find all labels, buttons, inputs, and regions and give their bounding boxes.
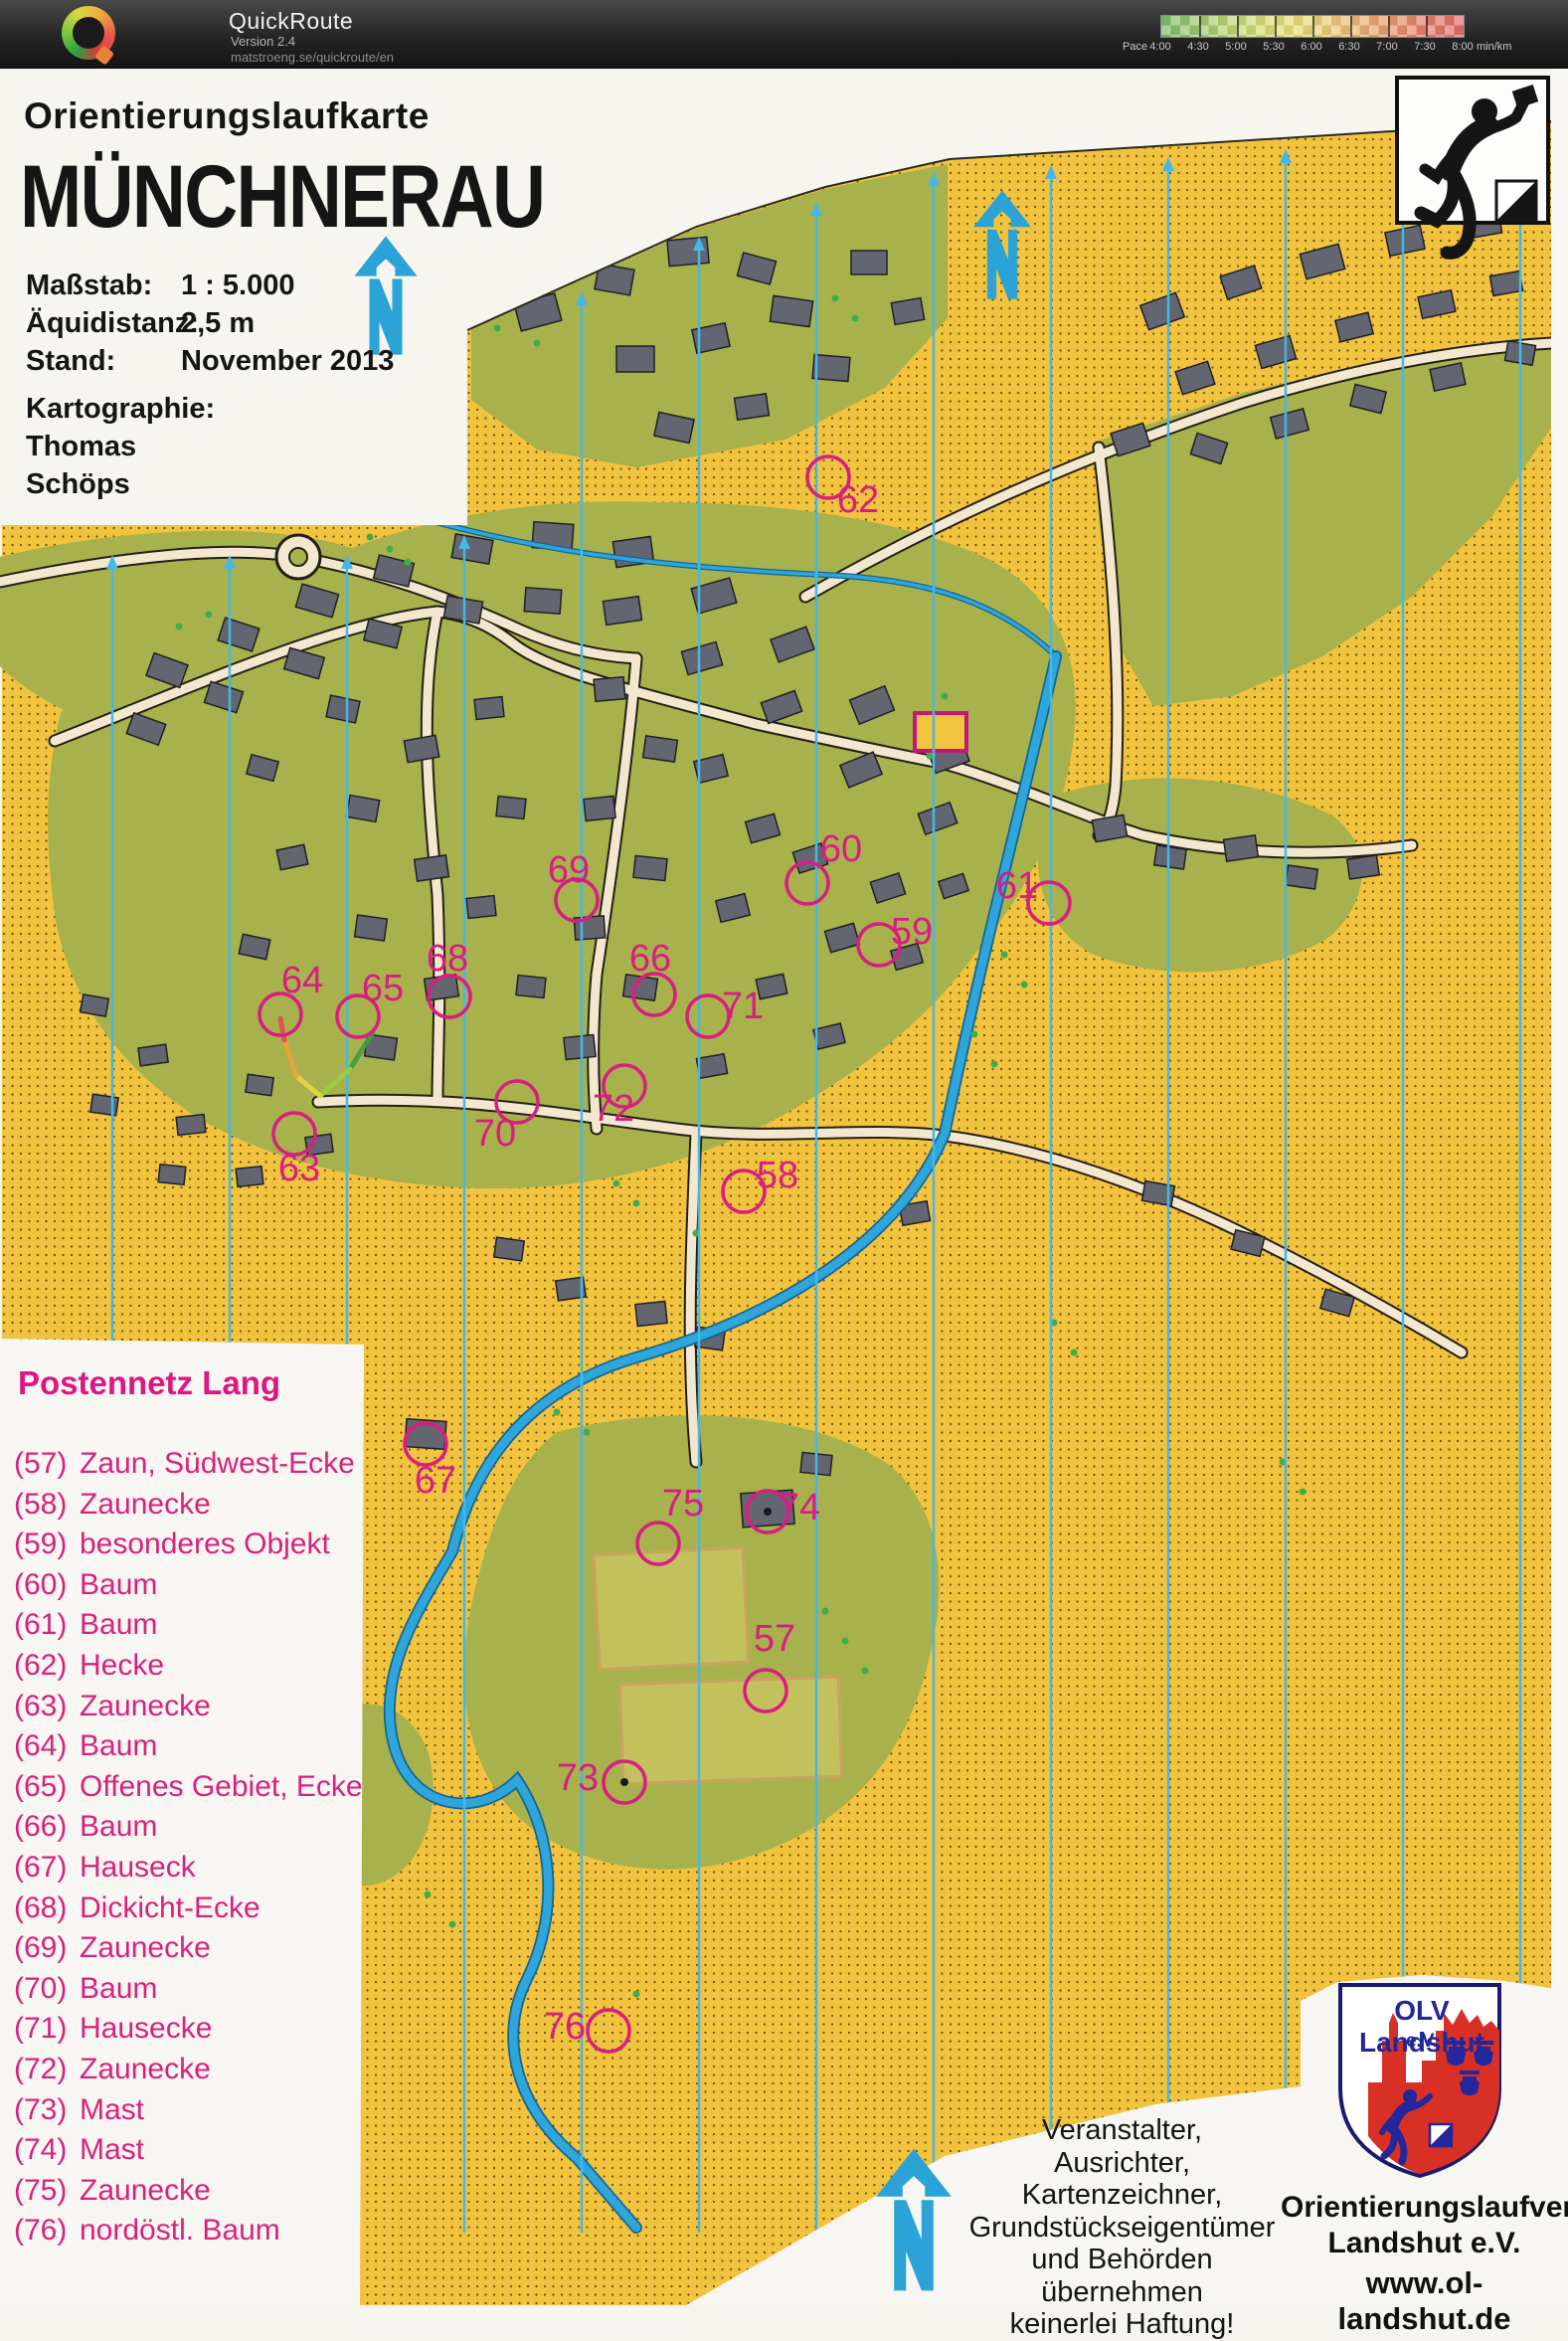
building (696, 1054, 727, 1079)
mast-symbol (620, 1778, 628, 1786)
control-number: (75) (14, 2171, 80, 2212)
control-description-row: (76)nordöstl. Baum (14, 2211, 363, 2251)
control-description: besonderes Objekt (80, 1528, 330, 1560)
pace-tick (1388, 16, 1390, 37)
pace-tick (1350, 16, 1352, 37)
control-description: Mast (80, 2133, 144, 2166)
control-description: Baum (80, 1972, 157, 2005)
app-header: QuickRoute Version 2.4 matstroeng.se/qui… (0, 0, 1568, 69)
control-description: Baum (80, 1729, 157, 1762)
building (236, 1167, 263, 1187)
control-description-row: (67)Hauseck (14, 1848, 363, 1889)
pace-tick (1199, 16, 1201, 37)
control-number-label: 61 (996, 865, 1038, 907)
building (90, 1094, 118, 1115)
building (1141, 1181, 1174, 1206)
control-number: (63) (14, 1687, 80, 1727)
building (81, 994, 109, 1016)
control-number-label: 74 (779, 1487, 820, 1529)
control-description-row: (61)Baum (14, 1605, 363, 1646)
scale-value: 1 : 5.000 (181, 270, 294, 301)
control-description-row: (75)Zaunecke (14, 2171, 363, 2212)
map-title: MÜNCHNERAU (20, 145, 544, 248)
control-number: (57) (14, 1444, 80, 1485)
tree-dot (832, 295, 839, 302)
pace-tick-label: 8:00 (1452, 41, 1473, 53)
tree-dot (633, 1200, 640, 1207)
tree-dot (367, 534, 374, 541)
control-description-row: (69)Zaunecke (14, 1928, 363, 1969)
building (812, 354, 850, 381)
map-info-table: Maßstab:1 : 5.000 Äquidistanz:2,5 m Stan… (26, 267, 394, 380)
pace-tick (1237, 16, 1239, 37)
cartographer-last-name: Schöps (26, 465, 215, 503)
control-number: (76) (14, 2211, 80, 2251)
tree-dot (927, 753, 934, 760)
date-row: Stand:November 2013 (26, 342, 394, 380)
control-description: Baum (80, 1608, 157, 1641)
control-number-label: 62 (837, 479, 879, 521)
control-number-label: 65 (362, 968, 404, 1009)
tree-dot (1001, 952, 1008, 959)
control-description-row: (66)Baum (14, 1807, 363, 1848)
cartography-block: Kartographie: Thomas Schöps (26, 390, 215, 503)
tree-dot (534, 340, 541, 347)
control-description-row: (74)Mast (14, 2130, 363, 2171)
disclaimer-line: Grundstückseigentümer (951, 2212, 1294, 2245)
control-number: (60) (14, 1565, 80, 1606)
building (891, 298, 924, 325)
control-number-label: 66 (629, 938, 671, 980)
tree-dot (991, 1061, 998, 1068)
pace-tick (1275, 16, 1277, 37)
building (643, 736, 678, 762)
building (616, 346, 654, 372)
disclaimer-line: Ausrichter, (951, 2147, 1294, 2180)
control-number-label: 67 (415, 1460, 456, 1502)
control-description-row: (65)Offenes Gebiet, Ecke (14, 1767, 363, 1808)
equidistance-row: Äquidistanz:2,5 m (26, 304, 394, 342)
disclaimer-line: Kartenzeichner, (951, 2179, 1294, 2212)
disclaimer-line: keinerlei Haftung! (951, 2308, 1294, 2341)
club-name: Orientierungslaufverein Landshut e.V. (1281, 2190, 1568, 2261)
control-description: Hauseck (80, 1851, 196, 1884)
quickroute-window: { "header": { "app_name": "QuickRoute", … (0, 0, 1568, 2305)
app-url: matstroeng.se/quickroute/en (231, 50, 394, 65)
pace-scale: Pace4:004:305:005:306:006:307:007:308:00… (1115, 13, 1532, 63)
control-description: Zaunecke (80, 2053, 211, 2085)
building (604, 597, 642, 626)
building (851, 251, 887, 274)
out-of-bounds-area (915, 713, 966, 751)
control-number-label: 68 (427, 938, 468, 980)
tree-dot (822, 1608, 829, 1615)
building (633, 855, 667, 880)
control-description-row: (68)Dickicht-Ecke (14, 1889, 363, 1929)
control-number: (62) (14, 1646, 80, 1687)
building (138, 1044, 168, 1066)
control-description: Baum (80, 1810, 157, 1843)
tree-dot (176, 624, 183, 630)
building (1092, 814, 1127, 841)
pace-tick (1312, 16, 1314, 37)
building (1489, 271, 1522, 296)
control-list: (57)Zaun, Südwest-Ecke(58)Zaunecke(59)be… (14, 1444, 363, 2251)
building (346, 796, 379, 822)
control-description-row: (59)besonderes Objekt (14, 1525, 363, 1565)
control-number: (58) (14, 1485, 80, 1526)
control-number-label: 59 (891, 911, 933, 953)
tree-dot (971, 1031, 978, 1038)
club-shield-subtitle: e.V. (1334, 2031, 1509, 2053)
control-number-label: 76 (544, 2006, 586, 2048)
control-description: Zaun, Südwest-Ecke (80, 1447, 355, 1480)
control-list-heading: Postennetz Lang (18, 1364, 280, 1402)
building (524, 588, 562, 614)
tree-dot (862, 1668, 869, 1675)
control-description-row: (58)Zaunecke (14, 1485, 363, 1526)
control-description-row: (63)Zaunecke (14, 1687, 363, 1727)
control-description-row: (60)Baum (14, 1565, 363, 1606)
equidistance-value: 2,5 m (181, 307, 255, 339)
date-value: November 2013 (181, 345, 394, 377)
building (176, 1115, 206, 1136)
control-description-row: (64)Baum (14, 1726, 363, 1767)
building (158, 1165, 186, 1185)
building (1347, 855, 1379, 879)
building (1286, 865, 1317, 889)
pace-tick-label: min/km (1477, 41, 1511, 53)
control-number-label: 63 (278, 1148, 320, 1189)
building (404, 735, 438, 762)
control-description-row: (57)Zaun, Südwest-Ecke (14, 1444, 363, 1485)
control-description: nordöstl. Baum (80, 2214, 280, 2247)
pace-tick-label: 4:30 (1187, 41, 1208, 53)
building (564, 1034, 596, 1059)
building (415, 855, 449, 881)
tree-dot (613, 1180, 620, 1187)
control-description-row: (62)Hecke (14, 1646, 363, 1687)
pace-tick-label: Pace (1123, 41, 1147, 53)
pace-tick (1426, 16, 1428, 37)
building (594, 677, 625, 702)
disclaimer-line: Veranstalter, (951, 2114, 1294, 2147)
control-number: (74) (14, 2130, 80, 2171)
control-description: Hausecke (80, 2012, 212, 2045)
pace-tick-label: 6:30 (1338, 41, 1359, 53)
app-version: Version 2.4 (231, 34, 295, 49)
control-description: Baum (80, 1568, 157, 1601)
disclaimer-text: Veranstalter,Ausrichter,Kartenzeichner,G… (951, 2114, 1294, 2341)
control-number: (69) (14, 1928, 80, 1969)
club-website: www.ol-landshut.de (1281, 2265, 1568, 2337)
control-description: Mast (80, 2093, 144, 2126)
control-description: Zaunecke (80, 2174, 211, 2207)
scale-label: Maßstab: (26, 267, 181, 304)
tree-dot (1300, 1489, 1307, 1496)
building (496, 797, 526, 819)
building (494, 1237, 525, 1261)
control-description: Offenes Gebiet, Ecke (80, 1770, 363, 1803)
control-number: (66) (14, 1807, 80, 1848)
control-number-label: 71 (722, 986, 764, 1027)
pace-tick-label: 5:30 (1263, 41, 1284, 53)
tree-dot (449, 1921, 456, 1928)
tree-dot (425, 1891, 432, 1898)
building (246, 1074, 273, 1095)
control-number: (70) (14, 1969, 80, 2010)
control-number: (64) (14, 1726, 80, 1767)
control-number: (71) (14, 2009, 80, 2050)
control-number-label: 69 (548, 849, 590, 891)
control-number: (67) (14, 1848, 80, 1889)
control-number-label: 75 (662, 1483, 704, 1525)
tree-dot (206, 612, 213, 619)
building (1154, 845, 1186, 869)
pace-tick-label: 7:30 (1414, 41, 1435, 53)
control-description-row: (72)Zaunecke (14, 2050, 363, 2090)
tree-dot (584, 1429, 591, 1436)
tree-dot (942, 693, 949, 700)
tree-dot (842, 1638, 849, 1645)
control-number-label: 57 (754, 1618, 795, 1660)
map-subtitle: Orientierungslaufkarte (24, 95, 430, 137)
date-label: Stand: (26, 342, 181, 380)
tree-dot (405, 559, 412, 566)
tree-dot (1071, 1350, 1078, 1356)
tree-dot (852, 315, 859, 322)
control-description-row: (71)Hausecke (14, 2009, 363, 2050)
control-number: (72) (14, 2050, 80, 2090)
building (735, 394, 770, 420)
tree-dot (554, 1409, 561, 1416)
building (474, 697, 504, 720)
control-number: (65) (14, 1767, 80, 1808)
club-name-line1: Orientierungslaufverein (1281, 2190, 1568, 2226)
control-number-label: 60 (820, 828, 862, 870)
control-number-label: 73 (557, 1757, 599, 1799)
control-number-label: 64 (281, 960, 323, 1001)
tree-dot (633, 1991, 640, 1998)
disclaimer-line: und Behörden übernehmen (951, 2244, 1294, 2308)
control-description: Zaunecke (80, 1690, 211, 1722)
control-description-row: (70)Baum (14, 1969, 363, 2010)
control-number: (73) (14, 2090, 80, 2131)
control-number-label: 58 (757, 1155, 798, 1196)
control-description: Zaunecke (80, 1931, 211, 1964)
building (584, 796, 615, 820)
app-title: QuickRoute (229, 8, 353, 35)
pace-tick-label: 5:00 (1225, 41, 1246, 53)
tree-dot (387, 546, 394, 553)
control-description: Zaunecke (80, 1488, 211, 1521)
building (466, 896, 496, 919)
club-name-line2: Landshut e.V. (1281, 2226, 1568, 2261)
cartographer-first-name: Thomas (26, 428, 215, 465)
control-number-label: 72 (593, 1088, 634, 1130)
scale-row: Maßstab:1 : 5.000 (26, 267, 394, 304)
control-description-row: (73)Mast (14, 2090, 363, 2131)
control-number-label: 70 (474, 1113, 516, 1155)
tree-dot (494, 325, 501, 332)
building (355, 915, 388, 941)
building (1224, 835, 1259, 861)
tree-dot (1021, 982, 1028, 989)
pace-tick-label: 7:00 (1376, 41, 1397, 53)
control-number: (68) (14, 1889, 80, 1929)
cartography-label: Kartographie: (26, 390, 215, 428)
control-description: Dickicht-Ecke (80, 1891, 261, 1924)
building (635, 1301, 667, 1326)
control-number: (59) (14, 1525, 80, 1565)
pace-color-strip (1160, 15, 1465, 38)
mast-symbol (764, 1508, 772, 1516)
pace-tick-label: 4:00 (1149, 41, 1170, 53)
equidistance-label: Äquidistanz: (26, 304, 181, 342)
building (770, 295, 812, 326)
control-number: (61) (14, 1605, 80, 1646)
pace-tick-label: 6:00 (1301, 41, 1321, 53)
control-description: Hecke (80, 1649, 164, 1682)
building (667, 237, 709, 266)
building (516, 976, 546, 998)
